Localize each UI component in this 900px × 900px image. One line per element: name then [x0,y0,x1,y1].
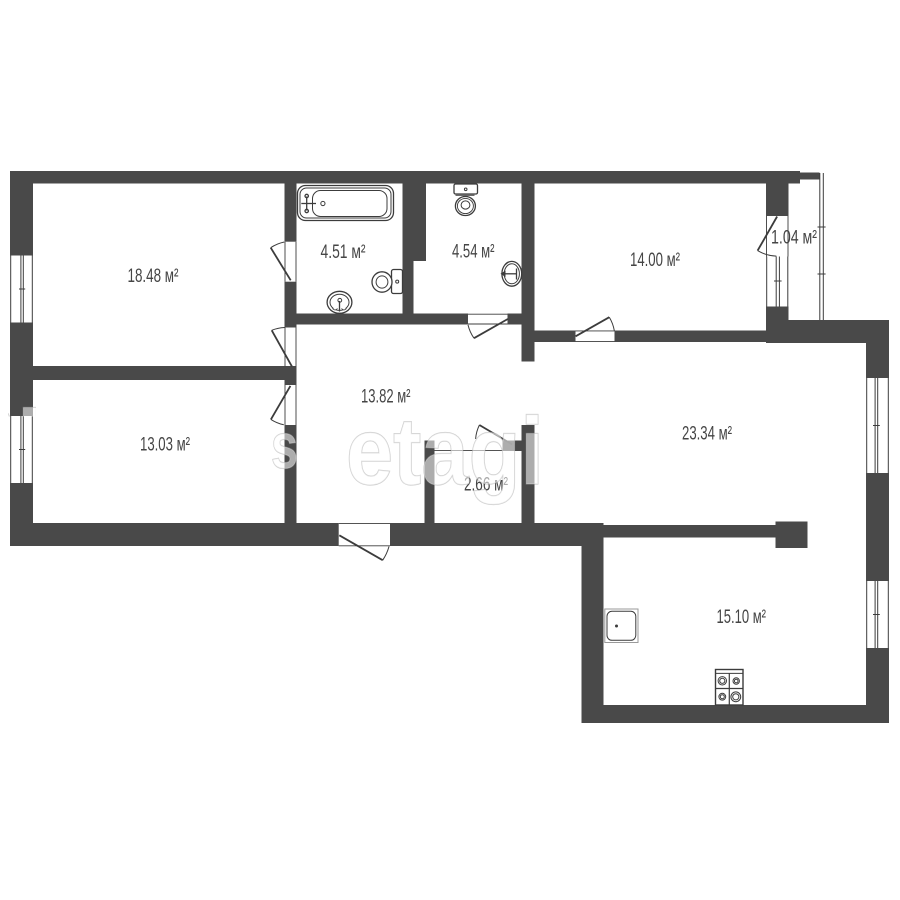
svg-text:13.03 м²: 13.03 м² [140,435,190,456]
svg-text:4.54 м²: 4.54 м² [452,242,495,263]
svg-text:1.04 м²: 1.04 м² [771,228,817,249]
svg-text:23.34 м²: 23.34 м² [682,424,732,445]
svg-text:etagi: etagi [346,398,544,505]
svg-text:15.10 м²: 15.10 м² [717,607,767,628]
svg-text:14.00 м²: 14.00 м² [630,250,680,271]
svg-text:18.48 м²: 18.48 м² [128,266,179,287]
svg-text:4.51 м²: 4.51 м² [321,242,366,263]
svg-text:s: s [271,410,298,482]
